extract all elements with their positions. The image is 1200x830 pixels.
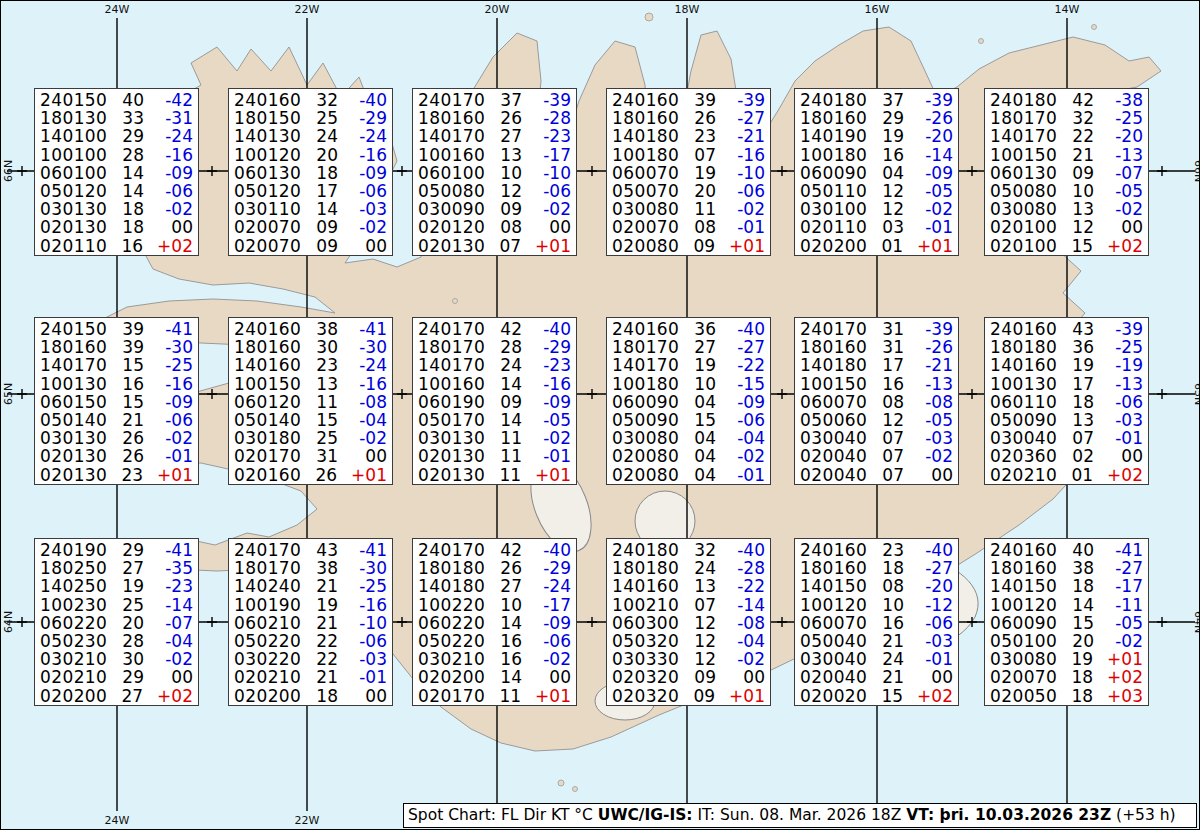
fl-dir-value: 140160 — [234, 356, 301, 374]
wind-kt-value: 42 — [500, 541, 522, 559]
fl-dir-value: 050220 — [418, 632, 485, 650]
wind-kt-value: 27 — [694, 338, 716, 356]
caption-center: UWC/IG-IS: — [598, 806, 693, 824]
temp-c-value: -04 — [731, 429, 765, 447]
wind-kt-value: 27 — [122, 559, 144, 577]
wind-kt-value: 07 — [882, 466, 904, 484]
station-level-row: 05004021-03 — [800, 632, 953, 650]
temp-c-value: -31 — [159, 109, 193, 127]
wind-kt-value: 17 — [316, 182, 338, 200]
wind-kt-value: 22 — [316, 632, 338, 650]
temp-c-value: -39 — [537, 91, 571, 109]
fl-dir-value: 140180 — [612, 127, 679, 145]
station-box-r1c1: 24015040-4218013033-3114010029-241001002… — [34, 88, 199, 256]
temp-c-value: -01 — [353, 668, 387, 686]
wind-kt-value: 28 — [122, 632, 144, 650]
wind-kt-value: 09 — [694, 668, 716, 686]
station-level-row: 14016023-24 — [234, 356, 387, 374]
station-level-row: 10013017-13 — [990, 375, 1143, 393]
fl-dir-value: 140240 — [234, 577, 301, 595]
temp-c-value: -30 — [353, 338, 387, 356]
temp-c-value: +03 — [1107, 687, 1143, 705]
station-level-row: 0201001200 — [990, 218, 1143, 236]
wind-kt-value: 19 — [122, 577, 144, 595]
station-level-row: 0201301800 — [40, 218, 193, 236]
fl-dir-value: 060130 — [234, 164, 301, 182]
station-level-row: 05006012-05 — [800, 411, 953, 429]
temp-c-value: -09 — [353, 164, 387, 182]
wind-kt-value: 04 — [882, 164, 904, 182]
temp-c-value: -41 — [159, 541, 193, 559]
temp-c-value: -40 — [919, 541, 953, 559]
temp-c-value: -16 — [159, 375, 193, 393]
wind-kt-value: 12 — [882, 411, 904, 429]
wind-kt-value: 37 — [500, 91, 522, 109]
station-level-row: 02032009+01 — [612, 687, 765, 705]
temp-c-value: -10 — [353, 614, 387, 632]
wind-kt-value: 12 — [694, 614, 716, 632]
wind-kt-value: 15 — [1072, 614, 1094, 632]
station-level-row: 06009004-09 — [612, 393, 765, 411]
temp-c-value: 00 — [159, 668, 193, 686]
temp-c-value: +02 — [157, 237, 193, 255]
wind-kt-value: 21 — [122, 411, 144, 429]
wind-kt-value: 04 — [694, 429, 716, 447]
fl-dir-value: 050170 — [418, 411, 485, 429]
fl-dir-value: 030080 — [990, 650, 1057, 668]
wind-kt-value: 12 — [1072, 218, 1094, 236]
station-level-row: 0201703100 — [234, 447, 387, 465]
station-level-row: 18016030-30 — [234, 338, 387, 356]
wind-kt-value: 38 — [316, 559, 338, 577]
wind-kt-value: 42 — [500, 320, 522, 338]
station-level-row: 02013026-01 — [40, 447, 193, 465]
fl-dir-value: 020210 — [234, 668, 301, 686]
station-level-row: 10018007-16 — [612, 146, 765, 164]
station-level-row: 03013018-02 — [40, 200, 193, 218]
temp-c-value: +01 — [729, 237, 765, 255]
station-box-r2c4: 24016036-4018017027-2714017019-221001801… — [606, 317, 771, 485]
fl-dir-value: 020130 — [40, 447, 107, 465]
wind-kt-value: 17 — [1072, 375, 1094, 393]
wind-kt-value: 38 — [316, 320, 338, 338]
wind-kt-value: 22 — [316, 650, 338, 668]
wind-kt-value: 11 — [500, 447, 522, 465]
station-level-row: 14024021-25 — [234, 577, 387, 595]
station-level-row: 05022016-06 — [418, 632, 571, 650]
wind-kt-value: 17 — [882, 356, 904, 374]
temp-c-value: -02 — [919, 447, 953, 465]
wind-kt-value: 20 — [122, 614, 144, 632]
wind-kt-value: 23 — [316, 356, 338, 374]
station-level-row: 10023025-14 — [40, 596, 193, 614]
station-level-row: 06012011-08 — [234, 393, 387, 411]
station-level-row: 24016036-40 — [612, 320, 765, 338]
wind-kt-value: 08 — [500, 218, 522, 236]
temp-c-value: +01 — [535, 237, 571, 255]
temp-c-value: -06 — [1109, 393, 1143, 411]
fl-dir-value: 100120 — [234, 146, 301, 164]
station-level-row: 03011014-03 — [234, 200, 387, 218]
caption-product: Spot Chart: FL Dir KT °C — [408, 806, 598, 824]
wind-kt-value: 07 — [499, 237, 521, 255]
station-box-r2c1: 24015039-4118016039-3014017015-251001301… — [34, 317, 199, 485]
temp-c-value: -27 — [1109, 559, 1143, 577]
fl-dir-value: 240180 — [800, 91, 867, 109]
temp-c-value: -19 — [1109, 356, 1143, 374]
temp-c-value: -09 — [159, 393, 193, 411]
station-level-row: 02005018+03 — [990, 687, 1143, 705]
fl-dir-value: 020100 — [990, 237, 1057, 255]
fl-dir-value: 100180 — [800, 146, 867, 164]
fl-dir-value: 100150 — [234, 375, 301, 393]
wind-kt-value: 09 — [693, 687, 715, 705]
fl-dir-value: 020170 — [234, 447, 301, 465]
temp-c-value: +01 — [1107, 650, 1143, 668]
fl-dir-value: 050060 — [800, 411, 867, 429]
fl-dir-value: 240160 — [990, 320, 1057, 338]
station-level-row: 06021021-10 — [234, 614, 387, 632]
station-level-row: 10012010-12 — [800, 596, 953, 614]
temp-c-value: -11 — [1109, 596, 1143, 614]
meridian-label-top: 16W — [865, 3, 890, 16]
wind-kt-value: 37 — [882, 91, 904, 109]
fl-dir-value: 180170 — [990, 109, 1057, 127]
wind-kt-value: 10 — [694, 375, 716, 393]
wind-kt-value: 12 — [882, 182, 904, 200]
temp-c-value: -28 — [731, 559, 765, 577]
temp-c-value: -03 — [1109, 411, 1143, 429]
fl-dir-value: 030130 — [40, 429, 107, 447]
temp-c-value: +01 — [157, 466, 193, 484]
temp-c-value: -25 — [159, 356, 193, 374]
wind-kt-value: 01 — [881, 237, 903, 255]
fl-dir-value: 020040 — [800, 466, 867, 484]
wind-kt-value: 07 — [694, 146, 716, 164]
station-level-row: 06022014-09 — [418, 614, 571, 632]
station-level-row: 18025027-35 — [40, 559, 193, 577]
station-box-r3c4: 24018032-4018018024-2814016013-221002100… — [606, 538, 771, 706]
wind-kt-value: 01 — [1071, 466, 1093, 484]
temp-c-value: -05 — [1109, 182, 1143, 200]
fl-dir-value: 060120 — [234, 393, 301, 411]
temp-c-value: -06 — [353, 632, 387, 650]
wind-kt-value: 36 — [1072, 338, 1094, 356]
temp-c-value: 00 — [1109, 447, 1143, 465]
temp-c-value: -06 — [537, 182, 571, 200]
station-level-row: 06022020-07 — [40, 614, 193, 632]
station-level-row: 14013024-24 — [234, 127, 387, 145]
wind-kt-value: 18 — [1071, 687, 1093, 705]
wind-kt-value: 24 — [694, 559, 716, 577]
wind-kt-value: 33 — [122, 109, 144, 127]
station-level-row: 03022022-03 — [234, 650, 387, 668]
temp-c-value: 00 — [1109, 218, 1143, 236]
station-level-row: 03004007-03 — [800, 429, 953, 447]
temp-c-value: -13 — [1109, 375, 1143, 393]
temp-c-value: -01 — [1109, 429, 1143, 447]
station-level-row: 10018010-15 — [612, 375, 765, 393]
fl-dir-value: 140170 — [990, 127, 1057, 145]
station-level-row: 24016032-40 — [234, 91, 387, 109]
station-level-row: 03033012-02 — [612, 650, 765, 668]
parallel-label-right: 64N — [1192, 611, 1200, 633]
wind-kt-value: 20 — [316, 146, 338, 164]
temp-c-value: -02 — [537, 650, 571, 668]
station-level-row: 18016029-26 — [800, 109, 953, 127]
temp-c-value: -30 — [159, 338, 193, 356]
temp-c-value: -10 — [731, 164, 765, 182]
temp-c-value: -40 — [537, 541, 571, 559]
station-level-row: 06007019-10 — [612, 164, 765, 182]
fl-dir-value: 060210 — [234, 614, 301, 632]
station-level-row: 06019009-09 — [418, 393, 571, 411]
fl-dir-value: 240150 — [40, 320, 107, 338]
temp-c-value: -25 — [1109, 338, 1143, 356]
meridian-label-top: 14W — [1055, 3, 1080, 16]
station-level-row: 10013016-16 — [40, 375, 193, 393]
temp-c-value: -20 — [919, 577, 953, 595]
temp-c-value: -02 — [159, 429, 193, 447]
wind-kt-value: 27 — [500, 577, 522, 595]
station-level-row: 10021007-14 — [612, 596, 765, 614]
station-level-row: 02013007+01 — [418, 237, 571, 255]
fl-dir-value: 240180 — [990, 91, 1057, 109]
fl-dir-value: 050080 — [418, 182, 485, 200]
wind-kt-value: 13 — [316, 375, 338, 393]
station-level-row: 10010028-16 — [40, 146, 193, 164]
fl-dir-value: 060130 — [990, 164, 1057, 182]
fl-dir-value: 030040 — [800, 429, 867, 447]
fl-dir-value: 030040 — [990, 429, 1057, 447]
station-level-row: 02017011+01 — [418, 687, 571, 705]
parallel-label-left: 64N — [2, 611, 15, 633]
station-level-row: 06013018-09 — [234, 164, 387, 182]
station-level-row: 18016026-27 — [612, 109, 765, 127]
wind-kt-value: 21 — [882, 632, 904, 650]
graticule-tick-cross — [1157, 389, 1167, 399]
temp-c-value: -05 — [537, 411, 571, 429]
temp-c-value: -26 — [919, 338, 953, 356]
fl-dir-value: 060220 — [418, 614, 485, 632]
station-level-row: 10016014-16 — [418, 375, 571, 393]
station-level-row: 18017028-29 — [418, 338, 571, 356]
wind-kt-value: 19 — [882, 127, 904, 145]
spot-chart: 24W24W22W22W20W20W18W18W16W16W14W14W66N6… — [0, 0, 1200, 830]
wind-kt-value: 14 — [500, 668, 522, 686]
wind-kt-value: 18 — [1072, 393, 1094, 411]
wind-kt-value: 27 — [500, 127, 522, 145]
fl-dir-value: 180160 — [800, 338, 867, 356]
station-level-row: 02016026+01 — [234, 466, 387, 484]
wind-kt-value: 21 — [1072, 146, 1094, 164]
station-box-r3c6: 24016040-4118016038-2714015018-171001201… — [984, 538, 1149, 706]
fl-dir-value: 060100 — [40, 164, 107, 182]
temp-c-value: -27 — [731, 338, 765, 356]
station-level-row: 24016023-40 — [800, 541, 953, 559]
station-level-row: 0202001400 — [418, 668, 571, 686]
temp-c-value: -01 — [159, 447, 193, 465]
temp-c-value: -04 — [353, 411, 387, 429]
temp-c-value: -02 — [159, 200, 193, 218]
station-level-row: 0202102900 — [40, 668, 193, 686]
station-level-row: 10018016-14 — [800, 146, 953, 164]
meridian-label-top: 22W — [295, 3, 320, 16]
station-level-row: 14015008-20 — [800, 577, 953, 595]
meridian-label-top: 18W — [675, 3, 700, 16]
temp-c-value: -25 — [353, 577, 387, 595]
station-level-row: 02008004-01 — [612, 466, 765, 484]
fl-dir-value: 030130 — [418, 429, 485, 447]
wind-kt-value: 09 — [500, 393, 522, 411]
station-level-row: 06013009-07 — [990, 164, 1143, 182]
station-level-row: 05008012-06 — [418, 182, 571, 200]
fl-dir-value: 180160 — [418, 109, 485, 127]
fl-dir-value: 050070 — [612, 182, 679, 200]
wind-kt-value: 43 — [316, 541, 338, 559]
wind-kt-value: 15 — [316, 411, 338, 429]
fl-dir-value: 100130 — [40, 375, 107, 393]
temp-c-value: -13 — [919, 375, 953, 393]
temp-c-value: -16 — [353, 375, 387, 393]
fl-dir-value: 140180 — [800, 356, 867, 374]
fl-dir-value: 180180 — [990, 338, 1057, 356]
fl-dir-value: 020120 — [418, 218, 485, 236]
wind-kt-value: 29 — [122, 127, 144, 145]
wind-kt-value: 14 — [122, 164, 144, 182]
fl-dir-value: 180170 — [234, 559, 301, 577]
wind-kt-value: 15 — [122, 356, 144, 374]
wind-kt-value: 08 — [882, 577, 904, 595]
wind-kt-value: 11 — [694, 200, 716, 218]
fl-dir-value: 020320 — [612, 687, 679, 705]
station-level-row: 14017019-22 — [612, 356, 765, 374]
wind-kt-value: 26 — [500, 559, 522, 577]
station-level-row: 03008004-04 — [612, 429, 765, 447]
fl-dir-value: 100130 — [990, 375, 1057, 393]
wind-kt-value: 18 — [122, 200, 144, 218]
wind-kt-value: 28 — [500, 338, 522, 356]
wind-kt-value: 25 — [122, 596, 144, 614]
station-level-row: 14025019-23 — [40, 577, 193, 595]
temp-c-value: -02 — [159, 650, 193, 668]
station-level-row: 24018037-39 — [800, 91, 953, 109]
wind-kt-value: 32 — [1072, 109, 1094, 127]
caption-bar: Spot Chart: FL Dir KT °C UWC/IG-IS: IT: … — [403, 803, 1197, 828]
temp-c-value: -26 — [919, 109, 953, 127]
station-level-row: 06009004-09 — [800, 164, 953, 182]
station-level-row: 05014015-04 — [234, 411, 387, 429]
graticule-tick-cross — [1157, 166, 1167, 176]
temp-c-value: -25 — [1109, 109, 1143, 127]
fl-dir-value: 050080 — [990, 182, 1057, 200]
fl-dir-value: 100120 — [990, 596, 1057, 614]
fl-dir-value: 020100 — [990, 218, 1057, 236]
fl-dir-value: 140190 — [800, 127, 867, 145]
station-level-row: 02007008-01 — [612, 218, 765, 236]
temp-c-value: 00 — [353, 687, 387, 705]
station-level-row: 02013011-01 — [418, 447, 571, 465]
fl-dir-value: 100210 — [612, 596, 679, 614]
fl-dir-value: 060220 — [40, 614, 107, 632]
temp-c-value: -27 — [919, 559, 953, 577]
temp-c-value: -40 — [537, 320, 571, 338]
temp-c-value: -41 — [353, 541, 387, 559]
station-level-row: 14017024-23 — [418, 356, 571, 374]
wind-kt-value: 26 — [122, 429, 144, 447]
station-level-row: 24019029-41 — [40, 541, 193, 559]
wind-kt-value: 11 — [316, 393, 338, 411]
temp-c-value: +02 — [157, 687, 193, 705]
temp-c-value: -06 — [731, 411, 765, 429]
temp-c-value: -06 — [731, 182, 765, 200]
wind-kt-value: 14 — [500, 375, 522, 393]
fl-dir-value: 050320 — [612, 632, 679, 650]
station-level-row: 06007016-06 — [800, 614, 953, 632]
station-level-row: 10016013-17 — [418, 146, 571, 164]
fl-dir-value: 180160 — [40, 338, 107, 356]
fl-dir-value: 030110 — [234, 200, 301, 218]
fl-dir-value: 100150 — [800, 375, 867, 393]
temp-c-value: -03 — [353, 200, 387, 218]
temp-c-value: -17 — [537, 596, 571, 614]
wind-kt-value: 10 — [882, 596, 904, 614]
wind-kt-value: 38 — [1072, 559, 1094, 577]
wind-kt-value: 13 — [1072, 411, 1094, 429]
fl-dir-value: 240160 — [612, 91, 679, 109]
wind-kt-value: 21 — [316, 668, 338, 686]
wind-kt-value: 04 — [694, 393, 716, 411]
station-level-row: 05012017-06 — [234, 182, 387, 200]
temp-c-value: -22 — [731, 356, 765, 374]
station-box-r1c3: 24017037-3918016026-2814017027-231001601… — [412, 88, 577, 256]
fl-dir-value: 060100 — [418, 164, 485, 182]
wind-kt-value: 40 — [122, 91, 144, 109]
wind-kt-value: 31 — [882, 338, 904, 356]
fl-dir-value: 180160 — [612, 109, 679, 127]
station-level-row: 10015021-13 — [990, 146, 1143, 164]
temp-c-value: -02 — [537, 200, 571, 218]
station-level-row: 18016018-27 — [800, 559, 953, 577]
fl-dir-value: 140250 — [40, 577, 107, 595]
temp-c-value: +02 — [917, 687, 953, 705]
station-level-row: 06007008-08 — [800, 393, 953, 411]
temp-c-value: 00 — [919, 668, 953, 686]
wind-kt-value: 04 — [694, 466, 716, 484]
station-box-r2c3: 24017042-4018017028-2914017024-231001601… — [412, 317, 577, 485]
temp-c-value: -06 — [159, 411, 193, 429]
fl-dir-value: 140170 — [40, 356, 107, 374]
fl-dir-value: 100180 — [612, 146, 679, 164]
temp-c-value: -40 — [353, 91, 387, 109]
station-level-row: 10022010-17 — [418, 596, 571, 614]
fl-dir-value: 030130 — [40, 200, 107, 218]
temp-c-value: +02 — [1107, 466, 1143, 484]
temp-c-value: -09 — [159, 164, 193, 182]
wind-kt-value: 22 — [1072, 127, 1094, 145]
temp-c-value: -17 — [537, 146, 571, 164]
temp-c-value: -09 — [537, 614, 571, 632]
temp-c-value: -35 — [159, 559, 193, 577]
wind-kt-value: 16 — [500, 632, 522, 650]
temp-c-value: -06 — [353, 182, 387, 200]
wind-kt-value: 26 — [315, 466, 337, 484]
fl-dir-value: 030180 — [234, 429, 301, 447]
station-level-row: 24016043-39 — [990, 320, 1143, 338]
station-level-row: 05023028-04 — [40, 632, 193, 650]
fl-dir-value: 020320 — [612, 668, 679, 686]
fl-dir-value: 060070 — [800, 393, 867, 411]
